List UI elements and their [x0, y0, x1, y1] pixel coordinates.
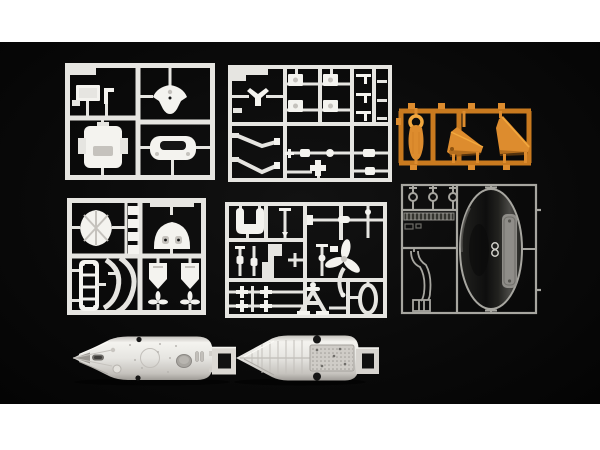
locating-hole [135, 375, 140, 380]
angled-arm-parts [231, 133, 280, 172]
canopy-shadow-blotch [469, 224, 489, 276]
v-bracket-part [139, 66, 187, 114]
sprue-c [70, 201, 204, 314]
shield-fin-parts [148, 257, 200, 313]
locating-hole [136, 337, 141, 342]
stippled-floor-plate [310, 345, 354, 371]
oval-ring-part [349, 282, 376, 313]
cross-fitting-parts [229, 286, 303, 312]
yoke-part [139, 136, 210, 177]
duct-part [411, 248, 431, 311]
tab-column-parts [126, 203, 139, 254]
sprue-a [66, 64, 213, 178]
shaft-parts [279, 206, 384, 238]
canopy-part [460, 185, 536, 313]
deck-part [78, 118, 128, 177]
sprue-b [230, 67, 390, 180]
rod-parts [285, 149, 388, 180]
sprue-clear [402, 185, 541, 313]
mini-propeller [180, 291, 200, 313]
stern-bracket [356, 348, 379, 374]
sprue-orange [396, 103, 531, 170]
sprue-b-gate-tab [230, 67, 268, 81]
y-fitting-part [231, 88, 285, 113]
l-bracket-parts [356, 74, 387, 121]
sprue-d [227, 204, 385, 316]
black-backdrop [0, 42, 600, 404]
sprue-a-gate-tab [66, 64, 96, 75]
fin-part-1 [447, 111, 483, 163]
locating-hole [313, 336, 321, 344]
paddle-part [409, 108, 424, 164]
propeller-part [324, 239, 363, 298]
canopy-panel-reflection [502, 214, 517, 288]
hull-half-exterior [73, 337, 236, 386]
stern-bracket [209, 348, 236, 375]
lens-parts [409, 186, 457, 210]
hull-half-interior [234, 336, 379, 386]
ladder-part [70, 262, 97, 309]
dome-part [150, 201, 194, 256]
sprue-scene [0, 42, 600, 404]
fin-part-2 [496, 111, 530, 163]
rod-parts [235, 244, 338, 278]
ribbed-strip-part [404, 213, 454, 229]
kit-photo [0, 0, 600, 450]
saddle-part [236, 204, 264, 240]
curved-frame-parts [97, 258, 134, 312]
mini-propeller [148, 291, 168, 313]
locating-hole [313, 373, 321, 381]
pod-part [70, 210, 126, 246]
